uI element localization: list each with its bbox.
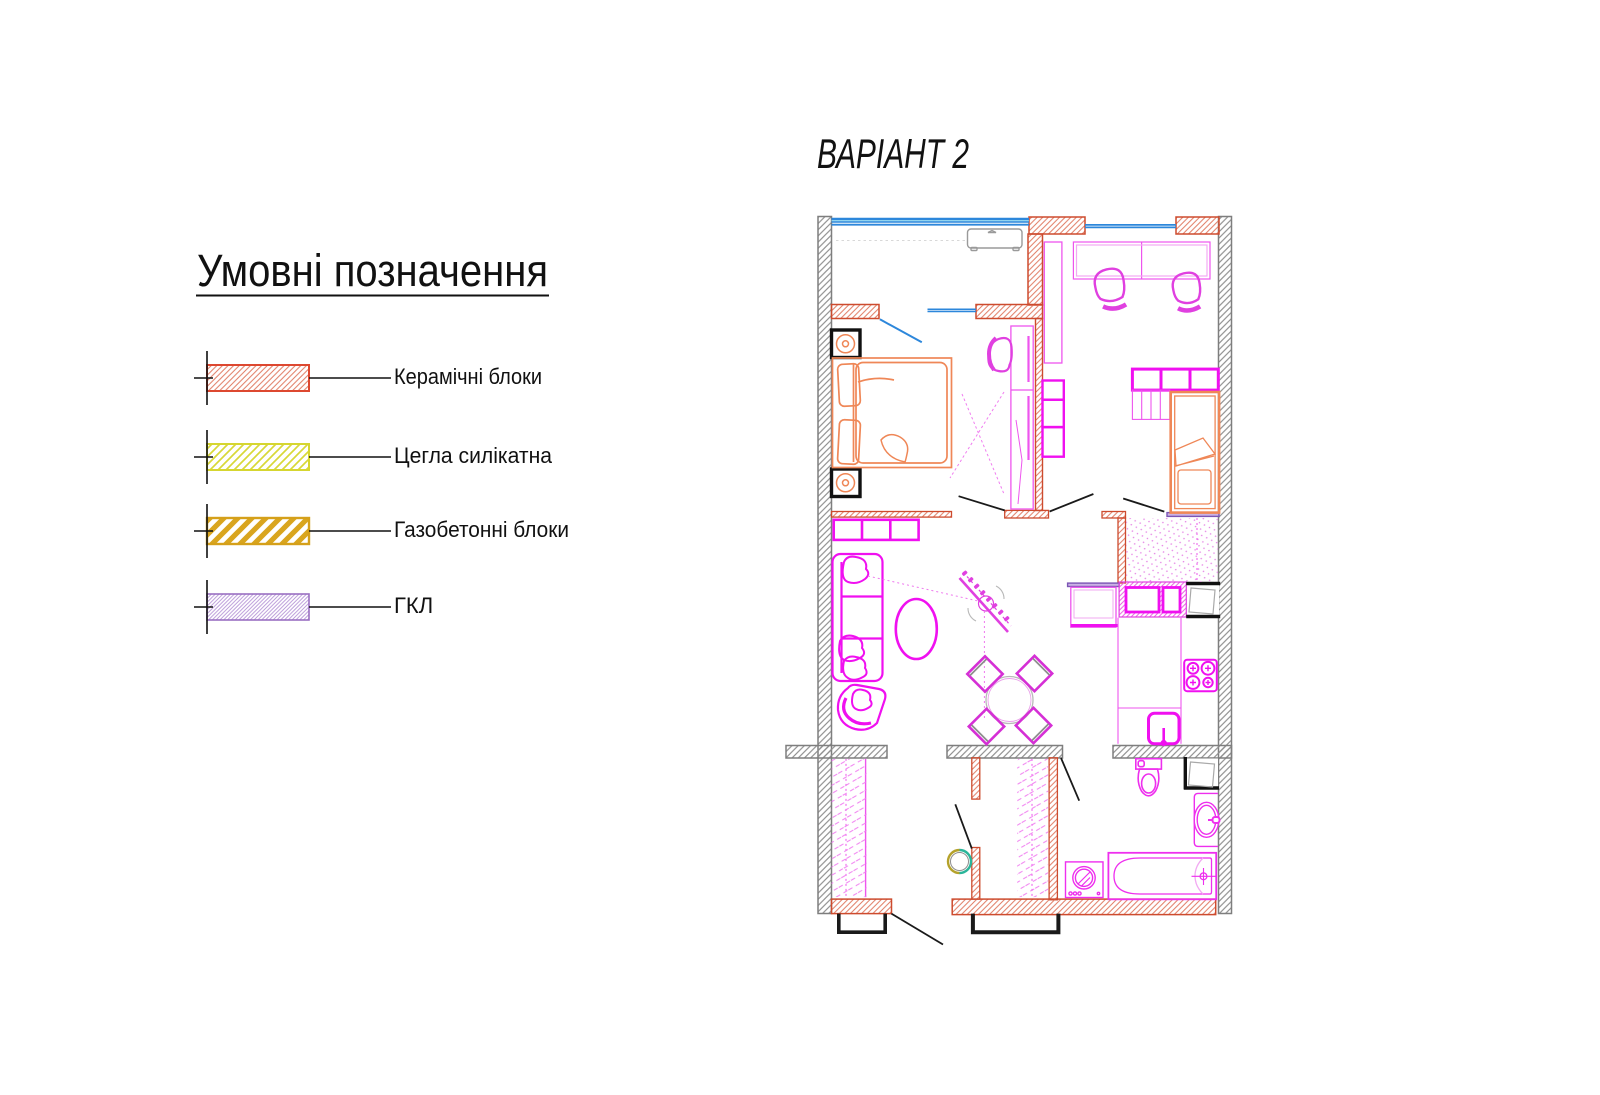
svg-text:Керамічні блоки: Керамічні блоки <box>394 364 542 389</box>
svg-text:ГКЛ: ГКЛ <box>394 593 433 618</box>
svg-text:ВАРІАНТ 2: ВАРІАНТ 2 <box>817 130 969 177</box>
svg-text:Газобетонні блоки: Газобетонні блоки <box>394 517 569 542</box>
svg-text:Цегла силікатна: Цегла силікатна <box>394 443 553 468</box>
svg-text:Умовні позначення: Умовні позначення <box>197 245 548 296</box>
